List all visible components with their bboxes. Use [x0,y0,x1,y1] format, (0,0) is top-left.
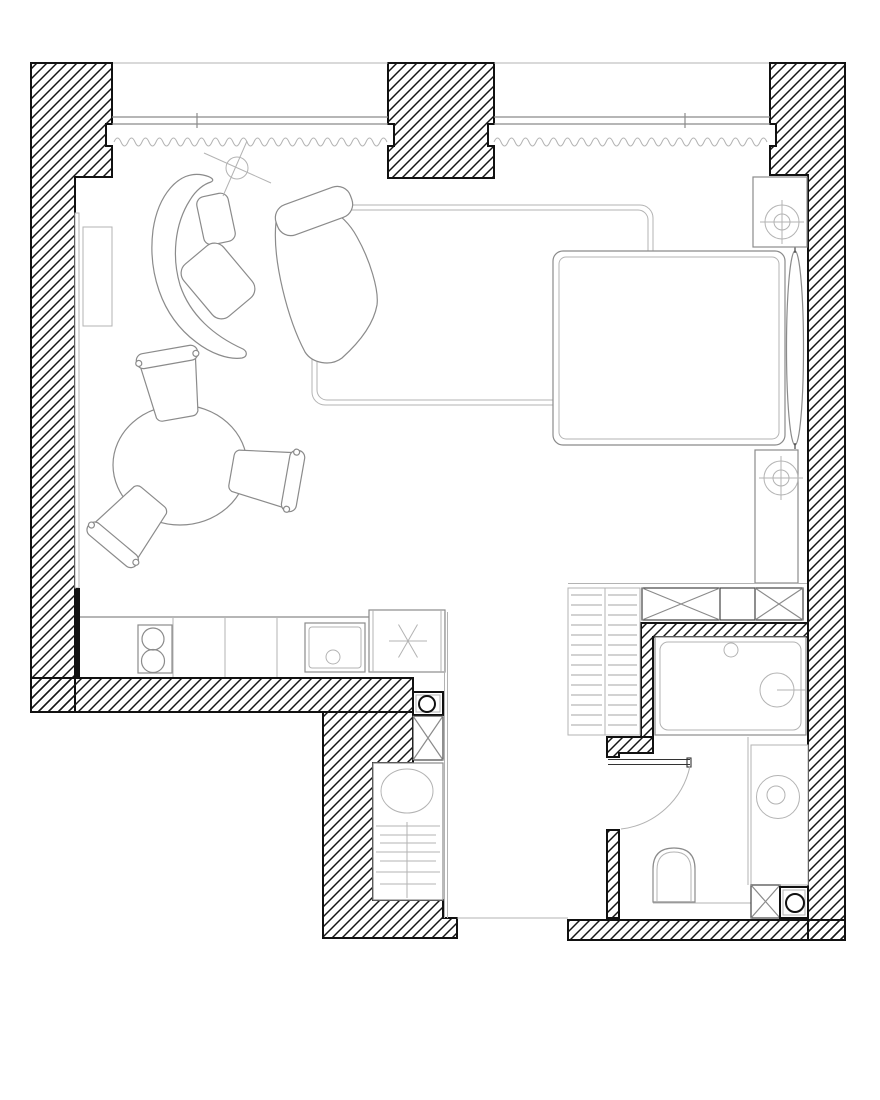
bathroom-door [608,758,691,829]
chair-back-knob [135,360,142,367]
washbasin-counter [751,745,808,885]
lounge-group [152,141,377,363]
kitchen-sink [305,623,365,672]
meter-gauge [419,696,435,712]
kitchen-group [76,588,445,678]
dining-group [83,344,306,571]
floor-lamp [204,141,271,196]
wall-kitchen-bottom [31,678,413,712]
chair-back-knob [293,449,300,456]
bolster-pillow [787,251,804,445]
shelf-lines-left [571,591,602,732]
chair-back-knob [283,506,290,513]
door-swing-arc [621,766,690,829]
floor-lamp-arm [204,141,271,196]
wall-top-middle-pillar [388,63,494,178]
floor-plan-canvas [0,0,880,1100]
double-bed [553,251,785,445]
shower-tray [655,637,806,735]
counter-end-panel [76,588,80,678]
counter-section-dividers [173,618,277,677]
bedside-column-bottom [755,450,798,583]
wall-bathroom-door-stub [607,830,619,918]
armchair-back-cushion [195,192,236,247]
meter-gauge-bathroom [786,894,804,912]
corridor-cabinet-side-line [445,612,448,918]
bed-group [553,177,807,583]
curtain-wave-right [494,138,767,146]
washing-machine [373,763,443,900]
door-leaf [608,760,690,765]
wall-bottom-right [568,920,845,940]
wall-ledge [75,213,79,588]
nightstand-top [753,177,807,247]
toilet [653,848,695,902]
curtain-wave-left [114,138,387,146]
chair-back-knob [192,350,199,357]
side-cabinet [83,227,112,326]
wall-left-with-pillar [31,63,112,712]
shelf-lines-right [608,591,637,732]
wall-bathroom-door-corner [607,737,653,757]
